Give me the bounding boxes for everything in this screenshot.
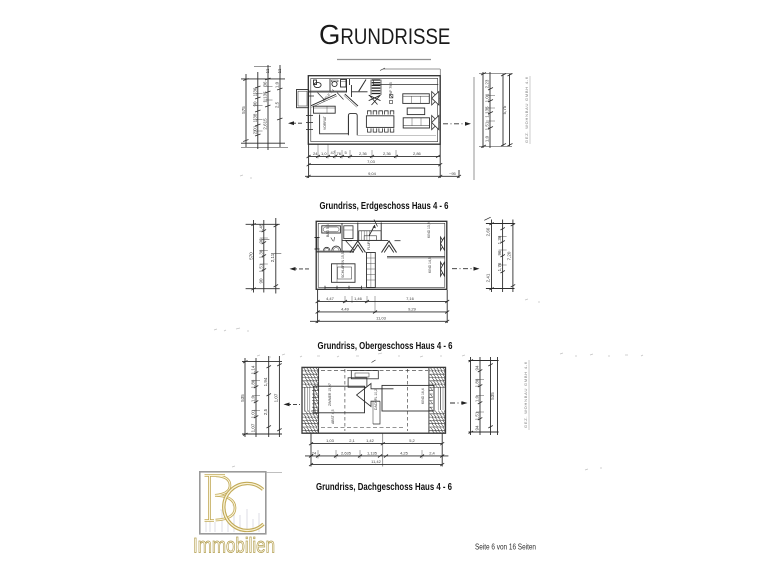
svg-text:11,42: 11,42 bbox=[371, 459, 381, 464]
svg-text:1,36: 1,36 bbox=[497, 235, 502, 244]
svg-text:4,25: 4,25 bbox=[400, 450, 409, 455]
svg-text:1,94: 1,94 bbox=[263, 377, 268, 386]
svg-text:5,75: 5,75 bbox=[502, 105, 507, 114]
svg-text:2,23: 2,23 bbox=[485, 79, 490, 88]
svg-text:1,51: 1,51 bbox=[258, 263, 263, 272]
svg-text:4,47: 4,47 bbox=[326, 296, 335, 301]
svg-text:ZIMMER 15,97: ZIMMER 15,97 bbox=[328, 383, 332, 406]
svg-text:76: 76 bbox=[337, 151, 342, 156]
svg-text:1,36: 1,36 bbox=[258, 249, 263, 258]
svg-text:7,20: 7,20 bbox=[507, 251, 512, 260]
svg-text:535: 535 bbox=[490, 392, 495, 400]
svg-text:1,135: 1,135 bbox=[485, 106, 490, 118]
svg-text:36: 36 bbox=[263, 81, 268, 87]
svg-text:1,86: 1,86 bbox=[251, 379, 256, 388]
svg-text:1,51: 1,51 bbox=[485, 121, 490, 130]
svg-text:KIND 16,4: KIND 16,4 bbox=[421, 388, 425, 404]
svg-text:47: 47 bbox=[331, 150, 336, 155]
svg-text:94: 94 bbox=[475, 425, 480, 431]
svg-text:Grundriss, Dachgeschoss Haus 4: Grundriss, Dachgeschoss Haus 4 - 6 bbox=[316, 481, 452, 493]
svg-text:1,45: 1,45 bbox=[258, 223, 263, 232]
svg-text:5,2: 5,2 bbox=[409, 438, 415, 443]
svg-text:96: 96 bbox=[258, 238, 263, 244]
svg-text:Grundriss, Erdgeschoss Haus 4: Grundriss, Erdgeschoss Haus 4 - 6 bbox=[320, 200, 449, 212]
svg-text:1,01: 1,01 bbox=[485, 93, 490, 102]
svg-text:KIND 14,5: KIND 14,5 bbox=[428, 257, 432, 273]
svg-text:ABST 4,5: ABST 4,5 bbox=[331, 409, 335, 424]
svg-text:1,42: 1,42 bbox=[366, 438, 375, 443]
svg-text:Grundriss, Obergeschoss Haus 4: Grundriss, Obergeschoss Haus 4 - 6 bbox=[318, 340, 453, 352]
svg-text:2,01: 2,01 bbox=[253, 125, 258, 134]
svg-text:2,36: 2,36 bbox=[383, 151, 392, 156]
svg-text:1,07: 1,07 bbox=[251, 423, 256, 432]
svg-text:1,0: 1,0 bbox=[321, 151, 327, 156]
svg-text:570: 570 bbox=[248, 252, 253, 260]
svg-text:1,03: 1,03 bbox=[326, 438, 335, 443]
svg-text:94: 94 bbox=[475, 365, 480, 371]
svg-text:2,36: 2,36 bbox=[359, 151, 368, 156]
svg-text:11: 11 bbox=[265, 68, 270, 73]
svg-text:7,16: 7,16 bbox=[406, 296, 415, 301]
svg-text:GEZ. WOHNBAU GMBH 4-6: GEZ. WOHNBAU GMBH 4-6 bbox=[524, 76, 529, 143]
svg-text:WF 79,5: WF 79,5 bbox=[389, 82, 393, 95]
svg-text:11: 11 bbox=[277, 68, 282, 73]
svg-text:1,76: 1,76 bbox=[497, 262, 502, 271]
svg-text:2,4: 2,4 bbox=[429, 450, 435, 455]
svg-text:9,29: 9,29 bbox=[408, 306, 417, 311]
svg-text:90: 90 bbox=[258, 278, 263, 284]
svg-text:GRUNDRISSE: GRUNDRISSE bbox=[319, 19, 450, 50]
svg-text:9,04: 9,04 bbox=[368, 171, 377, 176]
svg-text:VORRAT: VORRAT bbox=[323, 116, 327, 130]
svg-text:2,1: 2,1 bbox=[349, 438, 355, 443]
svg-text:2,86: 2,86 bbox=[413, 151, 422, 156]
svg-text:7,03: 7,03 bbox=[367, 159, 376, 164]
svg-text:GEZ. WOHNBAU GMBH 4-6: GEZ. WOHNBAU GMBH 4-6 bbox=[523, 361, 528, 428]
svg-text:BAD 5,6: BAD 5,6 bbox=[326, 224, 330, 237]
svg-text:2,5: 2,5 bbox=[263, 408, 268, 415]
svg-text:KIND 13,9: KIND 13,9 bbox=[427, 222, 431, 238]
svg-text:1,0: 1,0 bbox=[475, 395, 480, 402]
svg-text:1,135: 1,135 bbox=[367, 450, 378, 455]
svg-text:96: 96 bbox=[497, 250, 502, 256]
svg-text:FLUR: FLUR bbox=[367, 241, 371, 250]
svg-text:Seite 6 von 16 Seiten: Seite 6 von 16 Seiten bbox=[475, 543, 536, 552]
svg-text:1,0: 1,0 bbox=[251, 395, 256, 402]
svg-text:~95: ~95 bbox=[449, 171, 457, 176]
svg-text:1,38: 1,38 bbox=[253, 113, 258, 122]
svg-text:1,0: 1,0 bbox=[485, 135, 490, 142]
svg-text:535: 535 bbox=[240, 394, 245, 402]
svg-text:1,86: 1,86 bbox=[475, 378, 480, 387]
svg-text:90: 90 bbox=[253, 101, 258, 107]
svg-text:2,41: 2,41 bbox=[486, 273, 491, 282]
svg-text:1,135: 1,135 bbox=[263, 91, 268, 103]
svg-text:11,03: 11,03 bbox=[376, 316, 386, 321]
svg-text:24: 24 bbox=[312, 450, 317, 455]
svg-text:1,36: 1,36 bbox=[253, 87, 258, 96]
svg-text:2,66: 2,66 bbox=[486, 227, 491, 236]
svg-text:SCHLAFEN 15,52: SCHLAFEN 15,52 bbox=[341, 250, 345, 278]
svg-text:DACHFL 10,2: DACHFL 10,2 bbox=[374, 389, 378, 410]
svg-text:4,49: 4,49 bbox=[341, 306, 350, 311]
svg-text:1,46: 1,46 bbox=[354, 296, 363, 301]
svg-text:2,635: 2,635 bbox=[341, 450, 352, 455]
svg-text:24: 24 bbox=[313, 151, 318, 156]
svg-text:2,5: 2,5 bbox=[275, 101, 280, 108]
svg-text:1,07: 1,07 bbox=[274, 393, 279, 402]
svg-text:Immobilien: Immobilien bbox=[193, 534, 275, 558]
svg-text:1,51: 1,51 bbox=[475, 411, 480, 420]
svg-text:1,14: 1,14 bbox=[251, 365, 256, 374]
svg-text:575: 575 bbox=[241, 106, 246, 114]
svg-text:1,0: 1,0 bbox=[275, 81, 280, 88]
svg-text:1,01: 1,01 bbox=[251, 409, 256, 418]
svg-text:2,615: 2,615 bbox=[263, 118, 268, 130]
svg-text:5: 5 bbox=[345, 150, 348, 155]
svg-text:2,11: 2,11 bbox=[270, 253, 275, 262]
